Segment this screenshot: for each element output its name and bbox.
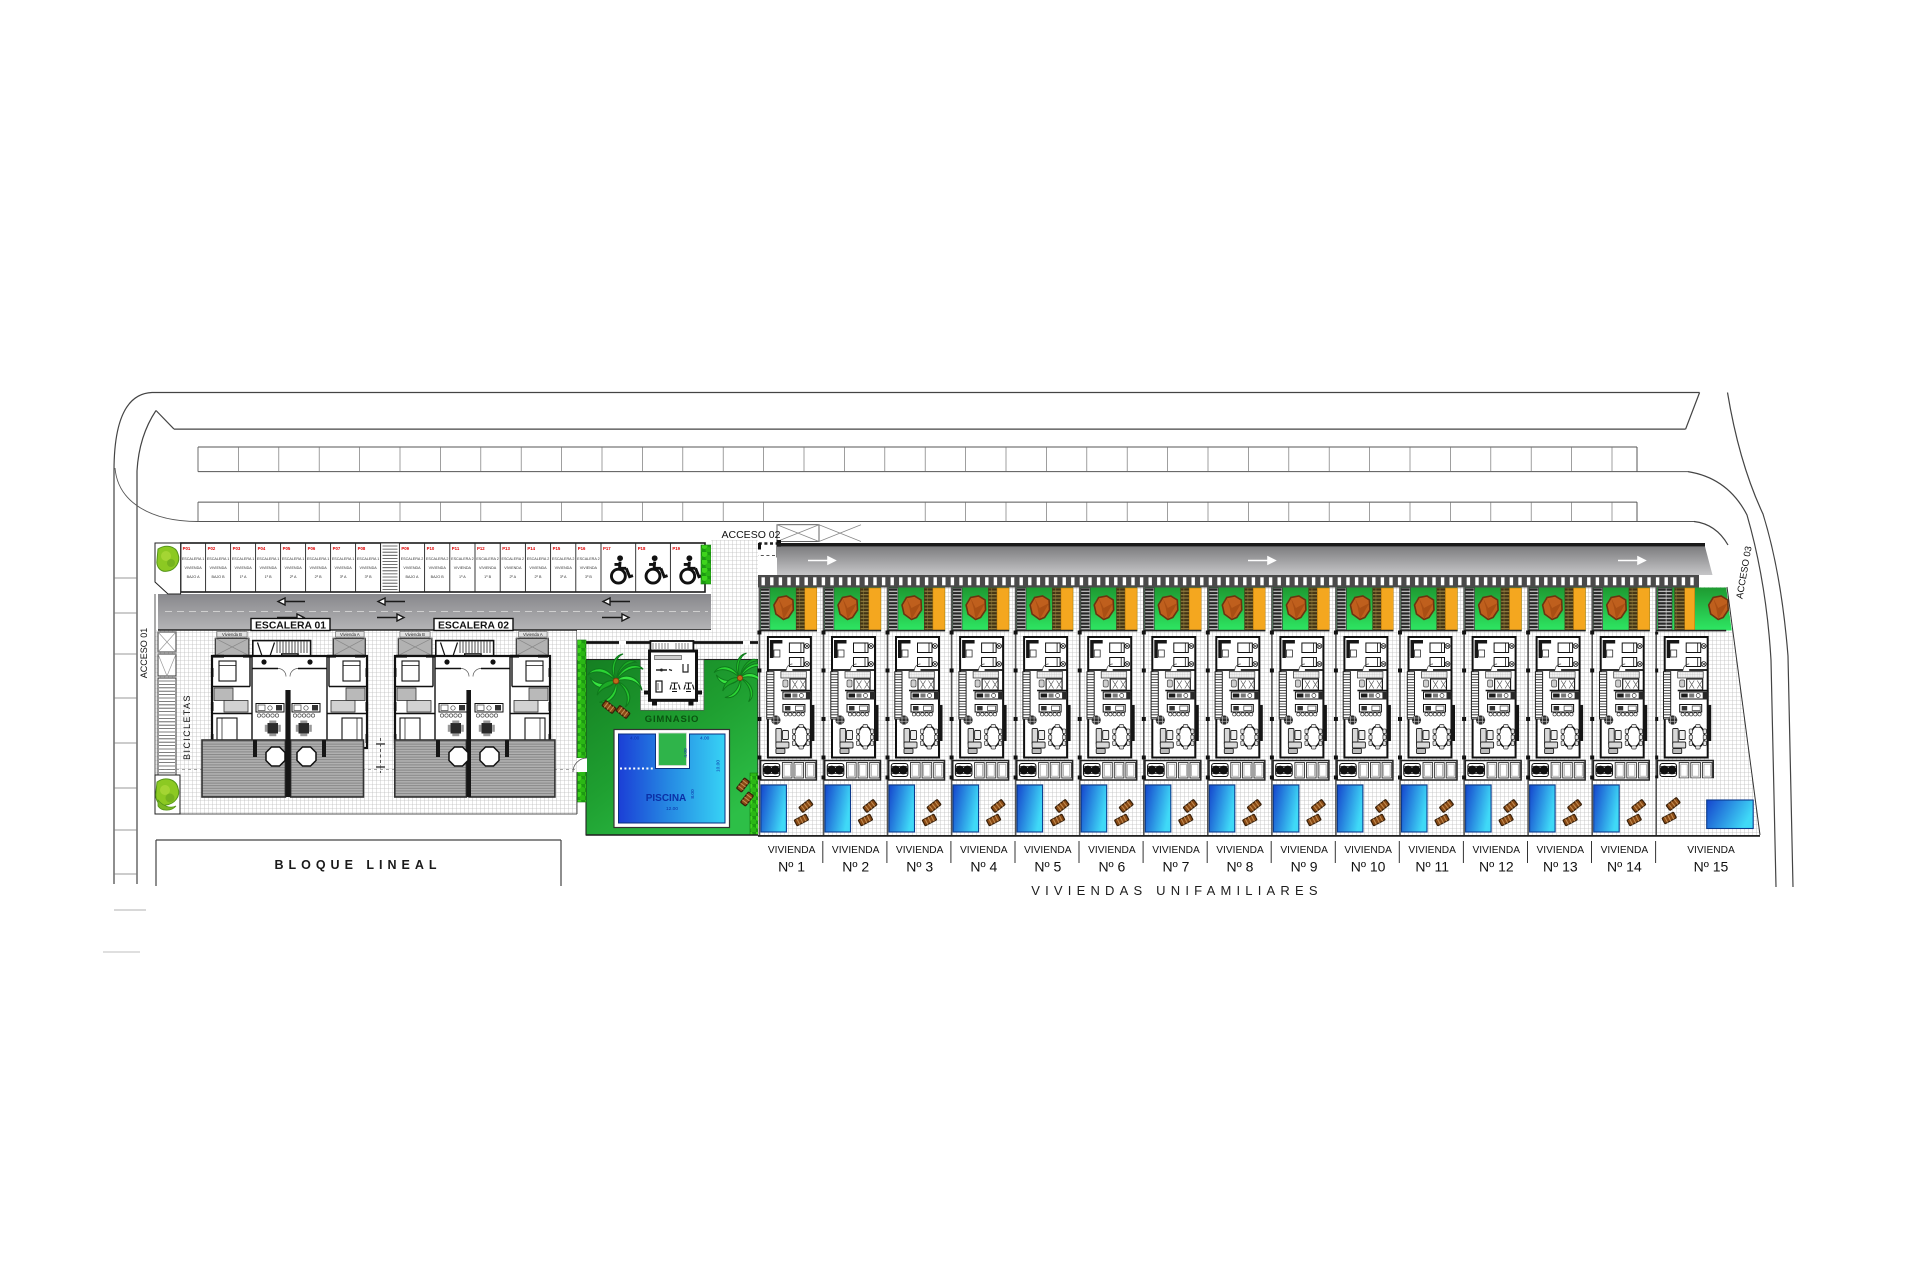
svg-text:1º A: 1º A: [240, 575, 247, 579]
svg-text:Nº 10: Nº 10: [1351, 859, 1386, 875]
svg-text:BAJO A: BAJO A: [406, 575, 419, 579]
svg-text:VIVIENDA: VIVIENDA: [1216, 845, 1264, 856]
svg-text:VIVIENDA: VIVIENDA: [1280, 845, 1328, 856]
svg-text:ESCALERA 1: ESCALERA 1: [282, 557, 305, 561]
svg-text:P08: P08: [358, 546, 366, 551]
svg-text:ESCALERA 02: ESCALERA 02: [438, 621, 509, 632]
svg-text:Nº 9: Nº 9: [1291, 859, 1318, 875]
svg-text:VIVIENDA: VIVIENDA: [960, 845, 1008, 856]
svg-text:VIVIENDA: VIVIENDA: [504, 566, 522, 570]
svg-text:ESCALERA 1: ESCALERA 1: [307, 557, 330, 561]
svg-text:P19: P19: [672, 546, 680, 551]
svg-text:3º A: 3º A: [560, 575, 567, 579]
svg-text:VIVIENDA: VIVIENDA: [896, 845, 944, 856]
svg-text:Nº 14: Nº 14: [1607, 859, 1642, 875]
svg-text:8.00: 8.00: [690, 789, 696, 799]
svg-text:P03: P03: [233, 546, 241, 551]
svg-text:VIVIENDA: VIVIENDA: [1408, 845, 1456, 856]
svg-text:ESCALERA 1: ESCALERA 1: [332, 557, 355, 561]
svg-text:Nº 7: Nº 7: [1163, 859, 1190, 875]
svg-text:VIVIENDA: VIVIENDA: [580, 566, 598, 570]
svg-text:Nº 2: Nº 2: [842, 859, 869, 875]
svg-text:4.00: 4.00: [700, 736, 710, 742]
svg-text:P10: P10: [427, 546, 435, 551]
svg-text:ESCALERA 01: ESCALERA 01: [255, 621, 326, 632]
svg-text:VIVIENDA: VIVIENDA: [1473, 845, 1521, 856]
svg-text:VIVIENDA: VIVIENDA: [555, 566, 573, 570]
svg-text:4.00: 4.00: [630, 736, 640, 742]
svg-text:P07: P07: [333, 546, 341, 551]
svg-text:1º B: 1º B: [484, 575, 491, 579]
svg-text:VIVIENDA: VIVIENDA: [768, 845, 816, 856]
svg-text:VIVIENDA: VIVIENDA: [1152, 845, 1200, 856]
svg-text:VIVIENDA: VIVIENDA: [1024, 845, 1072, 856]
svg-text:VIVIENDA: VIVIENDA: [1537, 845, 1585, 856]
svg-text:1º A: 1º A: [459, 575, 466, 579]
svg-text:ESCALERA 2: ESCALERA 2: [476, 557, 499, 561]
svg-text:2º A: 2º A: [290, 575, 297, 579]
svg-text:2º B: 2º B: [315, 575, 322, 579]
svg-text:ESCALERA 2: ESCALERA 2: [527, 557, 550, 561]
svg-text:P14: P14: [527, 546, 535, 551]
svg-text:1º B: 1º B: [265, 575, 272, 579]
svg-text:P16: P16: [578, 546, 586, 551]
svg-text:P06: P06: [308, 546, 316, 551]
svg-text:P01: P01: [183, 546, 191, 551]
svg-text:VIVIENDA: VIVIENDA: [184, 566, 202, 570]
svg-text:Nº 5: Nº 5: [1034, 859, 1061, 875]
svg-text:VIVIENDA: VIVIENDA: [1687, 845, 1735, 856]
svg-text:P12: P12: [477, 546, 485, 551]
svg-text:VIVIENDA: VIVIENDA: [284, 566, 302, 570]
svg-text:ESCALERA 1: ESCALERA 1: [182, 557, 205, 561]
svg-text:ESCALERA 2: ESCALERA 2: [502, 557, 525, 561]
svg-text:Nº 6: Nº 6: [1098, 859, 1125, 875]
svg-text:VIVIENDA: VIVIENDA: [1088, 845, 1136, 856]
svg-text:Nº 15: Nº 15: [1694, 859, 1729, 875]
svg-text:P04: P04: [258, 546, 266, 551]
svg-text:10.00: 10.00: [716, 760, 722, 772]
svg-text:ESCALERA 2: ESCALERA 2: [552, 557, 575, 561]
svg-text:P11: P11: [452, 546, 460, 551]
svg-text:2º A: 2º A: [509, 575, 516, 579]
svg-text:VIVIENDA: VIVIENDA: [334, 566, 352, 570]
svg-text:Nº 12: Nº 12: [1479, 859, 1514, 875]
svg-text:P13: P13: [502, 546, 510, 551]
svg-text:ESCALERA 1: ESCALERA 1: [257, 557, 280, 561]
svg-text:VIVIENDA: VIVIENDA: [429, 566, 447, 570]
svg-text:ACCESO 02: ACCESO 02: [722, 529, 781, 541]
svg-text:ESCALERA 2: ESCALERA 2: [451, 557, 474, 561]
svg-text:3º B: 3º B: [365, 575, 372, 579]
svg-text:BAJO B: BAJO B: [431, 575, 445, 579]
svg-text:ESCALERA 2: ESCALERA 2: [426, 557, 449, 561]
svg-text:P18: P18: [638, 546, 646, 551]
svg-text:VIVIENDA: VIVIENDA: [259, 566, 277, 570]
svg-text:VIVIENDAS UNIFAMILIARES: VIVIENDAS UNIFAMILIARES: [1031, 883, 1323, 898]
svg-text:2º B: 2º B: [535, 575, 542, 579]
svg-text:12.00: 12.00: [666, 806, 678, 812]
svg-text:3º A: 3º A: [340, 575, 347, 579]
svg-text:VIVIENDA: VIVIENDA: [234, 566, 252, 570]
svg-text:ESCALERA 1: ESCALERA 1: [232, 557, 255, 561]
svg-text:BAJO B: BAJO B: [212, 575, 226, 579]
svg-text:Nº 11: Nº 11: [1415, 859, 1449, 875]
svg-text:ESCALERA 1: ESCALERA 1: [207, 557, 230, 561]
svg-text:VIVIENDA: VIVIENDA: [403, 566, 421, 570]
svg-text:VIVIENDA: VIVIENDA: [309, 566, 327, 570]
svg-text:VIVIENDA: VIVIENDA: [479, 566, 497, 570]
svg-text:VIVIENDA: VIVIENDA: [832, 845, 880, 856]
svg-text:P02: P02: [208, 546, 216, 551]
svg-text:P09: P09: [401, 546, 409, 551]
svg-text:VIVIENDA: VIVIENDA: [454, 566, 472, 570]
svg-text:VIVIENDA: VIVIENDA: [529, 566, 547, 570]
svg-text:P05: P05: [283, 546, 291, 551]
svg-text:P17: P17: [603, 546, 611, 551]
svg-text:BICICLETAS: BICICLETAS: [182, 694, 192, 760]
svg-text:Nº 3: Nº 3: [906, 859, 933, 875]
svg-text:PISCINA: PISCINA: [646, 793, 687, 804]
svg-text:VIVIENDA: VIVIENDA: [359, 566, 377, 570]
svg-text:ESCALERA 2: ESCALERA 2: [401, 557, 424, 561]
svg-text:P15: P15: [553, 546, 561, 551]
svg-text:BLOQUE LINEAL: BLOQUE LINEAL: [274, 858, 441, 872]
svg-text:Nº 1: Nº 1: [778, 859, 805, 875]
svg-text:ESCALERA 2: ESCALERA 2: [577, 557, 600, 561]
svg-text:Nº 8: Nº 8: [1227, 859, 1254, 875]
svg-text:VIVIENDA: VIVIENDA: [1344, 845, 1392, 856]
svg-text:ACCESO 01: ACCESO 01: [139, 628, 149, 679]
svg-text:BAJO A: BAJO A: [187, 575, 200, 579]
svg-text:3º B: 3º B: [585, 575, 592, 579]
svg-text:Nº 4: Nº 4: [970, 859, 997, 875]
svg-text:GIMNASIO: GIMNASIO: [645, 714, 699, 725]
svg-text:ESCALERA 1: ESCALERA 1: [357, 557, 380, 561]
svg-text:Nº 13: Nº 13: [1543, 859, 1578, 875]
svg-text:4.00: 4.00: [683, 748, 689, 758]
svg-text:VIVIENDA: VIVIENDA: [1601, 845, 1649, 856]
svg-text:VIVIENDA: VIVIENDA: [209, 566, 227, 570]
